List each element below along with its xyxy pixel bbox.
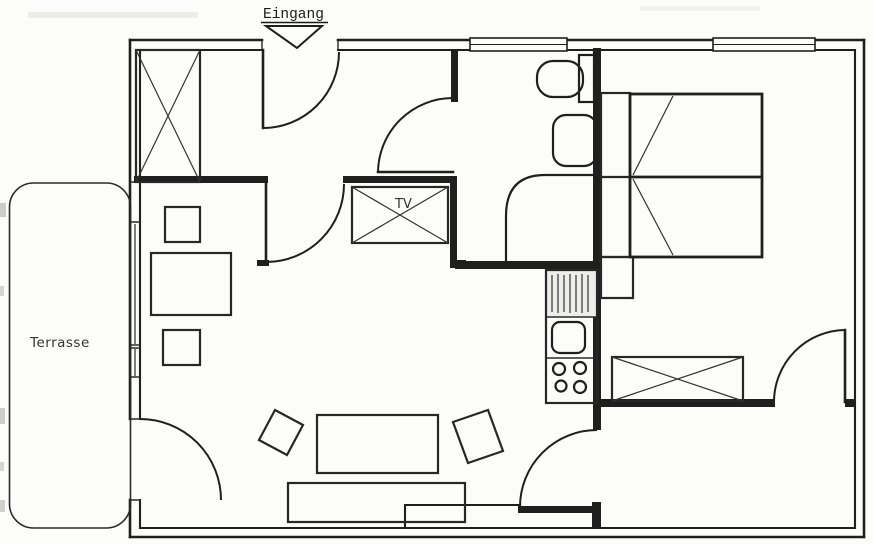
- hall-closet: [136, 50, 200, 182]
- entrance-label: Eingang: [263, 7, 324, 23]
- dining-table: [151, 253, 231, 315]
- bathroom-sink: [553, 115, 597, 166]
- tv-label: TV: [394, 197, 412, 212]
- kitchen-hatch-bg: [546, 270, 597, 317]
- terrace-outline: [10, 183, 131, 528]
- kitchen: [546, 270, 597, 403]
- entrance-arrow-icon: [266, 26, 322, 48]
- tv-cabinet: TV: [352, 187, 448, 243]
- bedroom-door: [774, 330, 845, 402]
- terrace: Terrasse: [10, 183, 131, 528]
- nightstand: [601, 257, 633, 298]
- double-bed: [630, 94, 762, 257]
- stove: [553, 362, 586, 393]
- bedroom-door-jamb-stub: [845, 399, 856, 407]
- terrace-door: [140, 419, 221, 500]
- armchair-right: [453, 410, 503, 463]
- terrace-label: Terrasse: [29, 335, 90, 351]
- kitchen-radiator-hatch: [552, 274, 588, 313]
- hall: [136, 50, 200, 182]
- bathtub: [506, 175, 597, 262]
- corridor-door: [518, 430, 598, 513]
- bathroom-window: [470, 38, 567, 51]
- bathroom-door: [378, 98, 453, 173]
- chair-bottom: [163, 330, 200, 365]
- armchair-left: [259, 410, 303, 455]
- sideboard: [288, 483, 465, 522]
- sofa: [317, 415, 438, 473]
- bedroom-wardrobe: [612, 357, 743, 401]
- outer-walls: [130, 40, 864, 537]
- headboard: [601, 93, 630, 257]
- bathroom-bottom-wall: [455, 261, 601, 269]
- chair-top: [165, 207, 200, 242]
- bathroom-left-wall-stub: [451, 50, 458, 102]
- bathroom: [506, 55, 597, 262]
- corridor-door-stub: [592, 502, 601, 528]
- kitchen-counter-dividers: [546, 317, 597, 358]
- kitchen-sink: [552, 322, 585, 353]
- bedroom: [601, 93, 762, 401]
- interior-walls: [134, 48, 856, 528]
- hall-living-door: [266, 183, 344, 262]
- entrance-marker: Eingang: [261, 7, 328, 48]
- doors: [140, 50, 845, 513]
- tv-niche-wall: [343, 176, 457, 183]
- toilet: [537, 55, 594, 102]
- scan-noise: [0, 6, 760, 512]
- bottom-wall-thick-edge: [405, 505, 519, 528]
- bedroom-window: [713, 38, 815, 51]
- entrance-door: [263, 50, 339, 128]
- tv-niche-side-wall: [450, 176, 457, 266]
- floor-plan: TV Terrasse Eingang: [0, 0, 873, 544]
